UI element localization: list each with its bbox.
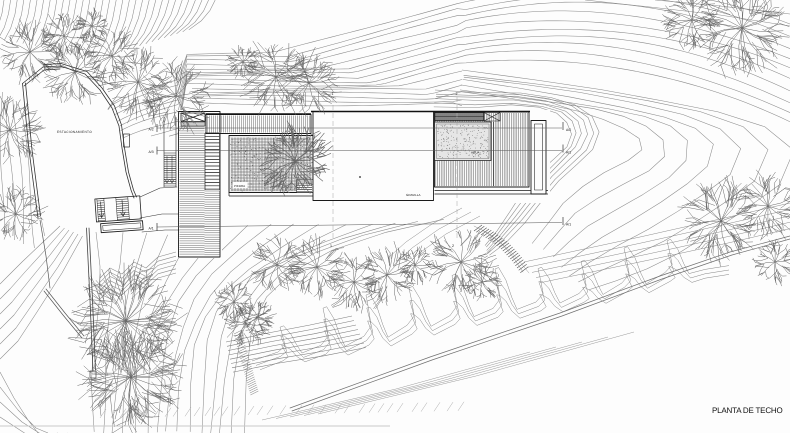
svg-text:1: 1: [330, 244, 332, 248]
svg-text:A/3: A/3: [149, 150, 154, 154]
svg-text:A/1: A/1: [149, 227, 154, 231]
svg-text:PLANTA DE TECHO: PLANTA DE TECHO: [712, 406, 783, 415]
svg-text:A/1: A/1: [566, 151, 571, 155]
svg-text:GRAVILLA: GRAVILLA: [406, 193, 420, 197]
svg-text:PIEDRA: PIEDRA: [234, 184, 245, 188]
svg-text:2: 2: [456, 92, 458, 96]
svg-text:A/1: A/1: [566, 223, 571, 227]
svg-text:A/2: A/2: [566, 128, 571, 132]
svg-text:ESTACIONAMIENTO: ESTACIONAMIENTO: [57, 130, 92, 134]
svg-text:2: 2: [452, 244, 454, 248]
svg-text:A/2: A/2: [149, 128, 154, 132]
svg-text:1: 1: [332, 92, 334, 96]
svg-text:AGUA: AGUA: [471, 151, 480, 155]
